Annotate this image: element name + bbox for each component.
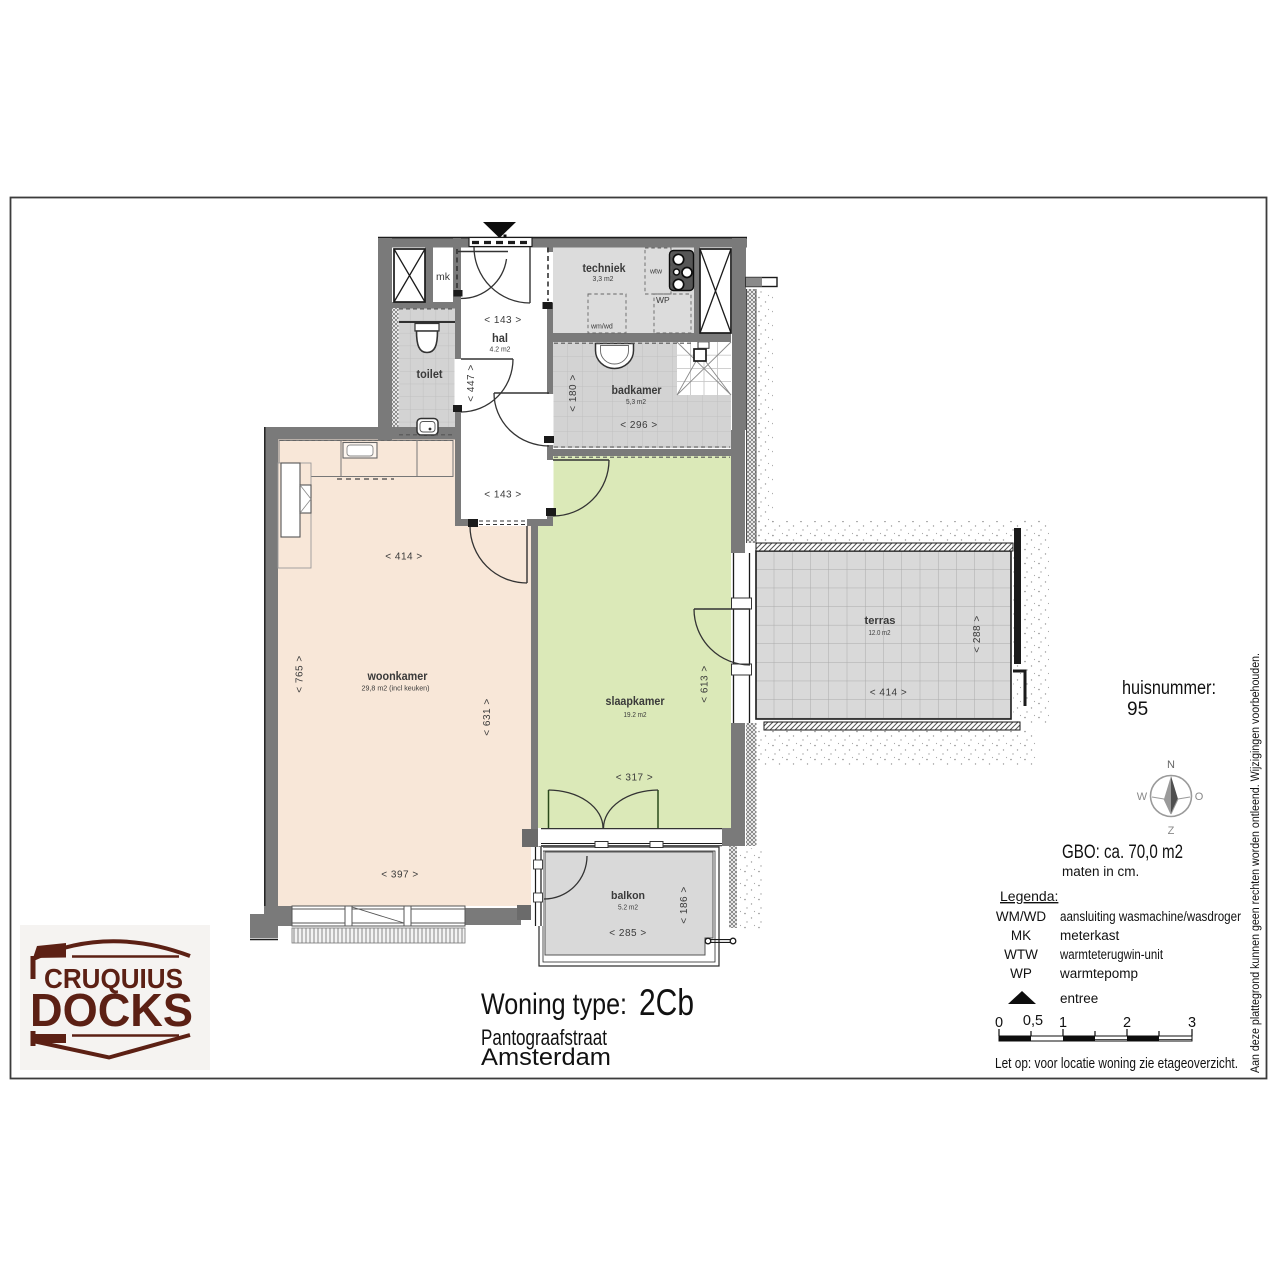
svg-text:meterkast: meterkast bbox=[1060, 928, 1120, 943]
svg-text:< 414 >: < 414 > bbox=[385, 552, 422, 563]
svg-text:woonkamer: woonkamer bbox=[367, 671, 428, 683]
svg-text:Woning type:: Woning type: bbox=[481, 988, 627, 1021]
svg-text:DOCKS: DOCKS bbox=[30, 984, 193, 1036]
svg-text:4.2 m2: 4.2 m2 bbox=[490, 345, 511, 354]
svg-text:Z: Z bbox=[1168, 825, 1175, 837]
svg-text:Let op: voor locatie woning: Let op: voor locatie woning zie etageove… bbox=[995, 1055, 1238, 1072]
svg-text:3,3 m2: 3,3 m2 bbox=[593, 274, 614, 283]
svg-text:O: O bbox=[1195, 791, 1204, 803]
svg-text:warmteterugwin-unit: warmteterugwin-unit bbox=[1059, 947, 1163, 962]
svg-text:< 288 >: < 288 > bbox=[972, 615, 983, 652]
svg-text:entree: entree bbox=[1060, 991, 1098, 1006]
svg-text:W: W bbox=[1137, 791, 1148, 803]
svg-text:< 765 >: < 765 > bbox=[295, 655, 306, 692]
svg-text:< 180 >: < 180 > bbox=[568, 374, 579, 411]
svg-text:MK: MK bbox=[1011, 928, 1031, 943]
svg-text:< 317 >: < 317 > bbox=[616, 773, 653, 784]
svg-text:slaapkamer: slaapkamer bbox=[606, 696, 665, 708]
svg-text:< 447 >: < 447 > bbox=[466, 364, 477, 401]
svg-text:< 613 >: < 613 > bbox=[700, 665, 711, 702]
svg-text:0: 0 bbox=[995, 1015, 1003, 1031]
svg-text:WP: WP bbox=[1010, 966, 1032, 981]
svg-text:wtw: wtw bbox=[649, 269, 663, 276]
svg-text:< 285 >: < 285 > bbox=[609, 928, 646, 939]
svg-text:< 143 >: < 143 > bbox=[484, 315, 521, 326]
svg-text:Legenda:: Legenda: bbox=[1000, 888, 1058, 904]
svg-text:hal: hal bbox=[492, 333, 508, 345]
svg-text:WTW: WTW bbox=[1004, 947, 1038, 962]
svg-text:29,8 m2 (incl keuken): 29,8 m2 (incl keuken) bbox=[362, 684, 430, 693]
svg-text:0,5: 0,5 bbox=[1023, 1013, 1043, 1029]
svg-text:huisnummer:: huisnummer: bbox=[1122, 678, 1216, 699]
svg-text:mk: mk bbox=[436, 271, 451, 283]
svg-text:1: 1 bbox=[1059, 1015, 1067, 1031]
svg-text:aansluiting wasmachine/wasdrog: aansluiting wasmachine/wasdroger bbox=[1060, 909, 1241, 924]
svg-text:3: 3 bbox=[1188, 1015, 1196, 1031]
svg-text:terras: terras bbox=[865, 615, 896, 627]
svg-text:GBO: ca. 70,0 m2: GBO: ca. 70,0 m2 bbox=[1062, 842, 1183, 863]
svg-text:19.2 m2: 19.2 m2 bbox=[624, 710, 647, 719]
svg-text:2Cb: 2Cb bbox=[639, 982, 694, 1023]
svg-text:balkon: balkon bbox=[611, 890, 645, 902]
svg-text:wm/wd: wm/wd bbox=[590, 324, 613, 331]
svg-text:badkamer: badkamer bbox=[612, 385, 662, 397]
svg-text:12.0 m2: 12.0 m2 bbox=[869, 628, 891, 637]
svg-text:Aan deze plattegrond kunnen ge: Aan deze plattegrond kunnen geen rechten… bbox=[1250, 653, 1262, 1073]
svg-text:< 186 >: < 186 > bbox=[679, 886, 690, 923]
svg-text:95: 95 bbox=[1127, 699, 1148, 720]
svg-text:WM/WD: WM/WD bbox=[996, 909, 1046, 924]
svg-text:Amsterdam: Amsterdam bbox=[481, 1044, 611, 1071]
svg-text:< 397 >: < 397 > bbox=[381, 870, 418, 881]
svg-text:WP: WP bbox=[656, 295, 670, 305]
svg-text:< 296 >: < 296 > bbox=[620, 420, 657, 431]
svg-text:2: 2 bbox=[1123, 1015, 1131, 1031]
svg-text:< 631 >: < 631 > bbox=[482, 698, 493, 735]
svg-text:5,3 m2: 5,3 m2 bbox=[626, 397, 646, 406]
svg-text:5.2 m2: 5.2 m2 bbox=[618, 903, 638, 912]
svg-text:warmtepomp: warmtepomp bbox=[1059, 966, 1138, 981]
svg-text:N: N bbox=[1167, 759, 1175, 771]
svg-text:< 414 >: < 414 > bbox=[870, 688, 907, 699]
svg-text:toilet: toilet bbox=[417, 369, 443, 381]
svg-text:maten in cm.: maten in cm. bbox=[1062, 864, 1139, 879]
svg-text:< 143 >: < 143 > bbox=[484, 490, 521, 501]
